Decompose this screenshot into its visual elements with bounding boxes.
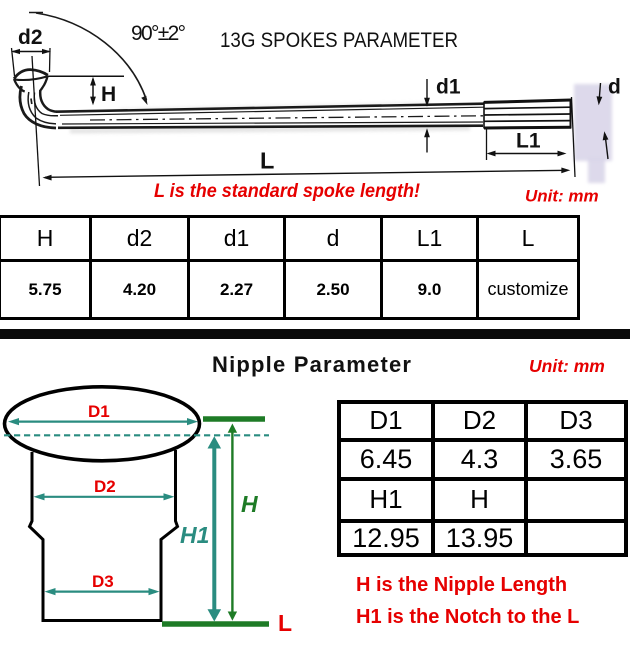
svg-text:D1: D1 — [88, 402, 110, 421]
svg-text:L: L — [278, 610, 292, 636]
svg-text:L is the standard spoke length: L is the standard spoke length! — [154, 181, 420, 202]
svg-text:d: d — [608, 76, 621, 99]
svg-text:Unit: mm: Unit: mm — [525, 187, 599, 206]
svg-text:d2: d2 — [18, 26, 43, 49]
svg-text:D2: D2 — [94, 477, 116, 496]
svg-text:L: L — [260, 148, 274, 174]
svg-text:D3: D3 — [92, 572, 114, 591]
svg-text:H: H — [101, 83, 116, 106]
svg-text:H1: H1 — [180, 522, 209, 548]
svg-text:90°±2°: 90°±2° — [131, 22, 186, 45]
svg-text:d1: d1 — [436, 76, 461, 99]
svg-text:L1: L1 — [516, 130, 541, 153]
svg-text:13G SPOKES PARAMETER: 13G SPOKES PARAMETER — [220, 29, 458, 52]
svg-text:H: H — [241, 491, 258, 517]
